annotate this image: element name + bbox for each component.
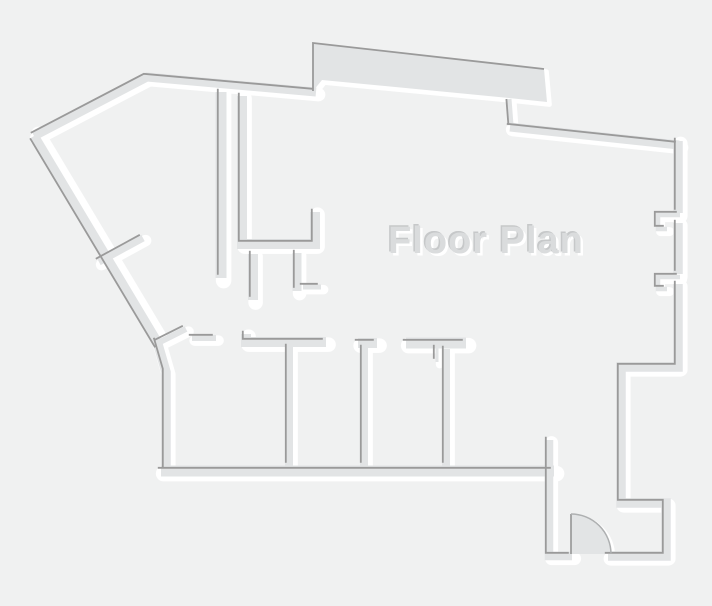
floor-plan-canvas: Floor Plan Floor Plan Floor Plan	[0, 0, 712, 606]
floor-plan-drawing: Floor Plan Floor Plan Floor Plan	[0, 0, 712, 606]
wall-outer-left-lower	[157, 341, 166, 471]
floor-plan-title-group: Floor Plan Floor Plan Floor Plan	[387, 219, 587, 265]
wall-entry-wall	[549, 440, 572, 556]
wall-upper-wall-b-highlight	[245, 99, 318, 247]
wall-top-connector	[509, 99, 511, 125]
floor-plan-title: Floor Plan	[388, 220, 584, 262]
wall-upper-wall-b	[242, 96, 315, 244]
